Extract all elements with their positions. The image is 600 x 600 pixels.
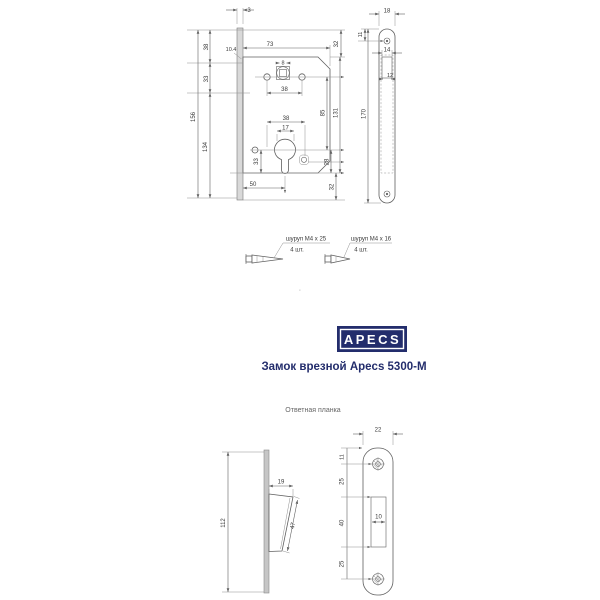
dim-tongue-width: 19 (278, 480, 285, 486)
strike-caption: Ответная планка (285, 407, 341, 414)
datasheet-page: 3 38 10.4 33 156 134 73 32 8 38 85 131 3… (0, 0, 600, 600)
screw-left-label: шуруп M4 x 25 (286, 237, 327, 243)
product-title: Замок врезной Apecs 5300-M (261, 361, 426, 373)
strike-tongue (269, 494, 293, 552)
dim-plate-offset: 10.4 (226, 47, 237, 53)
screw-body (252, 255, 283, 263)
dim-body-height: 131 (334, 107, 340, 118)
dim-follower-square: 8 (281, 61, 284, 67)
dim-strike-lower: 25 (340, 560, 346, 567)
screw-m4x25: шуруп M4 x 25 4 шт. (246, 237, 330, 265)
strike-side-view: 112 19 47 (221, 450, 300, 593)
dim-faceplate-width: 18 (384, 9, 391, 15)
logo-text: APECS (344, 332, 401, 347)
lock-body-view: 3 38 10.4 33 156 134 73 32 8 38 85 131 3… (187, 8, 345, 200)
dim-cutout-width: 10 (375, 515, 382, 521)
dim-latch-inner: 12 (387, 73, 393, 79)
dim-upper-left: 38 (204, 43, 210, 50)
screw-body (331, 255, 350, 263)
screw-m4x16: шуруп M4 x 16 4 шт. (325, 237, 392, 265)
technical-drawing: 3 38 10.4 33 156 134 73 32 8 38 85 131 3… (0, 0, 600, 600)
dim-strike-width: 22 (375, 428, 382, 434)
dim-cyl-left: 33 (254, 158, 260, 165)
dim-cyl-holes-span: 38 (283, 116, 290, 122)
dim-backset: 50 (250, 182, 257, 188)
dim-inner-height: 134 (203, 141, 209, 152)
faceplate-edge (237, 28, 243, 200)
dim-cutout-height: 40 (340, 519, 346, 526)
stray-mark: ' (299, 290, 300, 296)
dim-body-width: 73 (267, 42, 274, 48)
dim-latch-width: 14 (384, 48, 391, 54)
screw-right-label: шуруп M4 x 16 (351, 237, 392, 243)
dim-centers-distance: 85 (321, 109, 327, 116)
dim-faceplate-screw-offset: 11 (358, 32, 364, 38)
screw-head (325, 256, 331, 262)
apecs-logo: APECS (337, 326, 407, 352)
strike-plate-edge (264, 450, 269, 593)
screw-hole-top-center (386, 40, 388, 42)
dim-total-height: 156 (191, 111, 197, 122)
screw-left-qty: 4 шт. (290, 248, 304, 254)
dim-plate-thickness: 3 (247, 8, 251, 14)
dim-tongue-length: 47 (290, 521, 297, 529)
dim-lower-right: 32 (330, 183, 336, 190)
dim-upper-right: 32 (334, 40, 340, 47)
dim-strike-screw-offset: 11 (340, 454, 346, 460)
screw-hole-bottom-center (386, 193, 388, 195)
dim-faceplate-height: 170 (362, 108, 368, 119)
dim-mid-left: 33 (204, 75, 210, 82)
faceplate-view: 18 11 14 12 170 (358, 9, 405, 204)
screw-right-qty: 4 шт. (354, 248, 368, 254)
dim-cyl-width: 17 (282, 126, 289, 132)
dim-handle-holes-span: 38 (281, 87, 288, 93)
dim-strike-upper: 25 (340, 478, 346, 485)
strike-front-view: 22 11 25 40 25 10 (340, 428, 404, 596)
screw-head (246, 256, 252, 262)
dim-cyl-right: 28 (325, 158, 331, 165)
dim-strike-height: 112 (221, 518, 227, 528)
